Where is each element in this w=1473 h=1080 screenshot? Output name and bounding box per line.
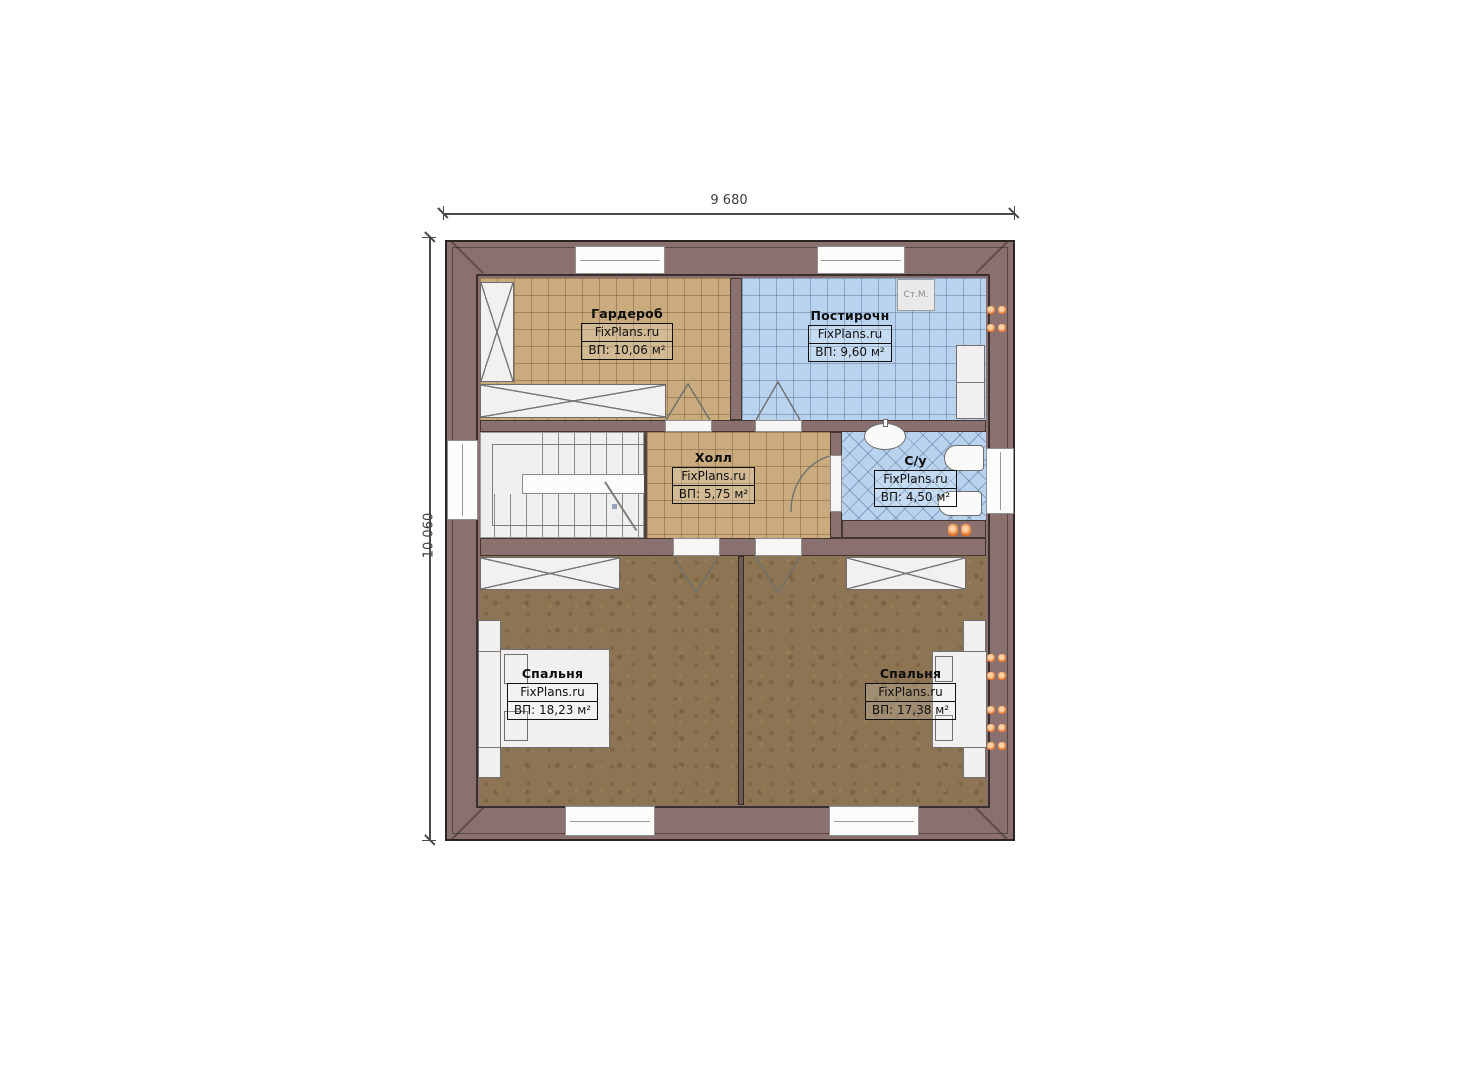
room-info-box: FixPlans.ru ВП: 10,06 м² — [581, 323, 672, 360]
room-name: Спальня — [522, 666, 583, 681]
radiator-dot — [987, 742, 995, 750]
door-opening — [755, 420, 802, 432]
window — [986, 448, 1014, 514]
stair-void — [522, 474, 644, 494]
radiator-icon — [987, 324, 1006, 332]
room-name: Гардероб — [591, 306, 663, 321]
brand-text: FixPlans.ru — [582, 324, 671, 342]
closet-icon — [846, 557, 966, 590]
door-swing-icon — [673, 556, 720, 594]
washing-machine-label: Ст.М. — [903, 290, 928, 300]
radiator-dot — [998, 324, 1006, 332]
room-info-box: FixPlans.ru ВП: 18,23 м² — [507, 683, 598, 720]
radiator-dot — [987, 672, 995, 680]
interior-wall — [480, 420, 986, 432]
brand-text: FixPlans.ru — [508, 684, 597, 702]
room-name: С/у — [904, 453, 927, 468]
room-label-hall: Холл FixPlans.ru ВП: 5,75 м² — [641, 450, 786, 504]
room-label-wardrobe: Гардероб FixPlans.ru ВП: 10,06 м² — [553, 306, 701, 360]
room-info-box: FixPlans.ru ВП: 9,60 м² — [808, 325, 892, 362]
room-name: Холл — [695, 450, 732, 465]
radiator-icon — [987, 742, 1006, 750]
radiator-icon — [987, 654, 1006, 662]
door-opening — [665, 420, 712, 432]
window — [829, 806, 919, 836]
window — [565, 806, 655, 836]
room-name: Спальня — [880, 666, 941, 681]
washing-machine-box: Ст.М. — [897, 279, 935, 311]
closet-icon — [480, 384, 666, 418]
radiator-dot — [998, 654, 1006, 662]
counter-divider — [957, 382, 984, 383]
window-glass-line — [1000, 452, 1001, 511]
radiator-icon — [987, 672, 1006, 680]
door-swing-icon — [665, 383, 712, 420]
radiator-dot — [998, 724, 1006, 732]
radiator-dot — [998, 306, 1006, 314]
window-glass-line — [821, 260, 900, 261]
floor-plan-canvas: 9 680 10 060 — [0, 0, 1473, 1080]
stair-walkline-dot — [612, 504, 617, 509]
brand-text: FixPlans.ru — [809, 326, 891, 344]
room-label-bedroom-left: Спальня FixPlans.ru ВП: 18,23 м² — [480, 666, 625, 720]
door-swing-icon — [755, 556, 802, 594]
radiator-dot — [987, 724, 995, 732]
door-swing-icon — [789, 454, 831, 514]
room-area-text: ВП: 18,23 м² — [508, 702, 597, 719]
radiator-dot — [998, 706, 1006, 714]
radiator-dot — [987, 306, 995, 314]
window — [817, 246, 905, 274]
radiator-dot — [948, 524, 958, 536]
interior-wall — [480, 538, 986, 556]
radiator-icon — [987, 306, 1006, 314]
door-opening — [673, 538, 720, 556]
window — [575, 246, 665, 274]
closet-icon — [480, 557, 620, 590]
room-info-box: FixPlans.ru ВП: 5,75 м² — [672, 467, 756, 504]
room-area-text: ВП: 5,75 м² — [673, 486, 755, 503]
door-swing-icon — [755, 381, 802, 420]
brand-text: FixPlans.ru — [866, 684, 955, 702]
radiator-icon — [948, 524, 971, 536]
radiator-dot — [987, 654, 995, 662]
room-info-box: FixPlans.ru ВП: 4,50 м² — [874, 470, 958, 507]
dimension-width-label: 9 680 — [443, 193, 1015, 208]
room-name: Постирочн — [810, 308, 889, 323]
window-glass-line — [834, 821, 915, 822]
laundry-counter — [956, 345, 985, 419]
room-area-text: ВП: 10,06 м² — [582, 342, 671, 359]
room-area-text: ВП: 9,60 м² — [809, 344, 891, 361]
dimension-width-line — [443, 213, 1015, 215]
radiator-icon — [987, 706, 1006, 714]
window — [447, 440, 478, 520]
closet-icon — [480, 282, 514, 382]
room-label-bathroom: С/у FixPlans.ru ВП: 4,50 м² — [843, 453, 988, 507]
room-area-text: ВП: 4,50 м² — [875, 489, 957, 506]
room-label-laundry: Постирочн FixPlans.ru ВП: 9,60 м² — [775, 308, 925, 362]
door-opening — [830, 455, 842, 512]
brand-text: FixPlans.ru — [875, 471, 957, 489]
dimension-height-line — [429, 237, 431, 841]
radiator-dot — [998, 672, 1006, 680]
brand-text: FixPlans.ru — [673, 468, 755, 486]
radiator-dot — [987, 706, 995, 714]
furniture-divider — [479, 747, 500, 748]
sink-icon — [864, 423, 906, 450]
room-info-box: FixPlans.ru ВП: 17,38 м² — [865, 683, 956, 720]
radiator-icon — [987, 724, 1006, 732]
window-glass-line — [462, 444, 463, 516]
radiator-dot — [961, 524, 971, 536]
door-opening — [755, 538, 802, 556]
furniture-divider — [479, 651, 500, 652]
room-label-bedroom-right: Спальня FixPlans.ru ВП: 17,38 м² — [838, 666, 983, 720]
window-glass-line — [570, 821, 651, 822]
room-area-text: ВП: 17,38 м² — [866, 702, 955, 719]
interior-wall — [730, 278, 742, 420]
radiator-dot — [998, 742, 1006, 750]
faucet-icon — [883, 419, 888, 427]
radiator-dot — [987, 324, 995, 332]
window-glass-line — [580, 260, 661, 261]
